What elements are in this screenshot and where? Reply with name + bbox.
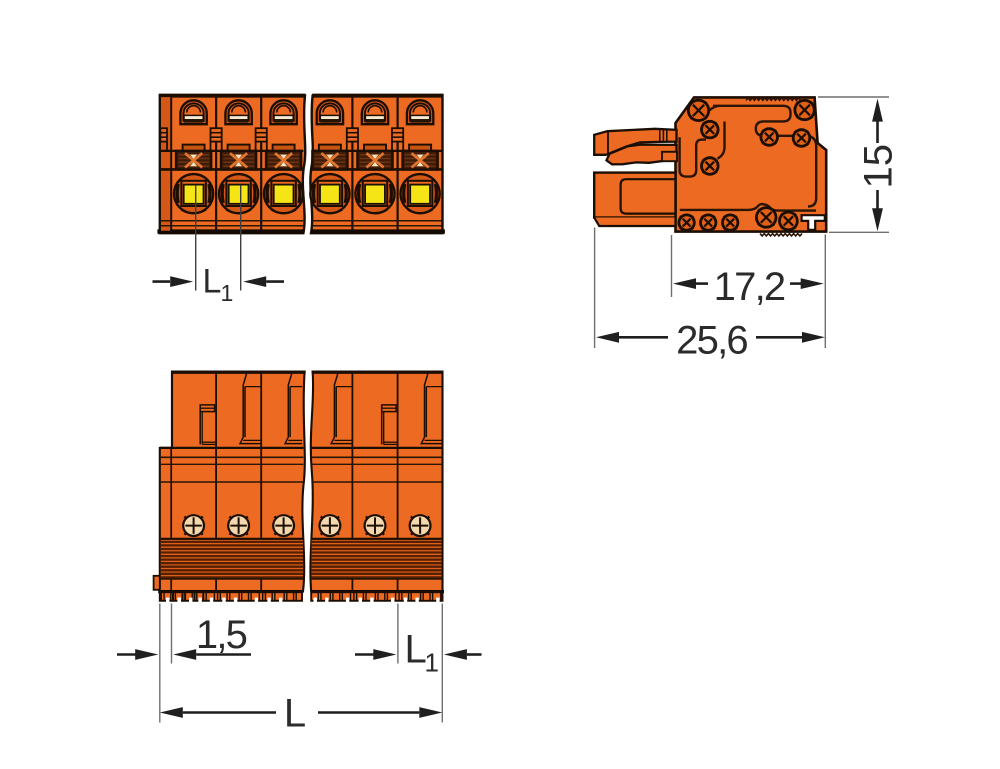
svg-text:1: 1 <box>425 648 439 678</box>
svg-text:L: L <box>405 627 427 671</box>
svg-text:1,5: 1,5 <box>196 613 247 657</box>
svg-text:L: L <box>203 262 222 300</box>
svg-text:L: L <box>284 692 306 736</box>
svg-text:25,6: 25,6 <box>676 319 747 363</box>
svg-text:15: 15 <box>857 144 901 189</box>
svg-text:1: 1 <box>221 280 234 306</box>
svg-text:17,2: 17,2 <box>714 265 785 309</box>
